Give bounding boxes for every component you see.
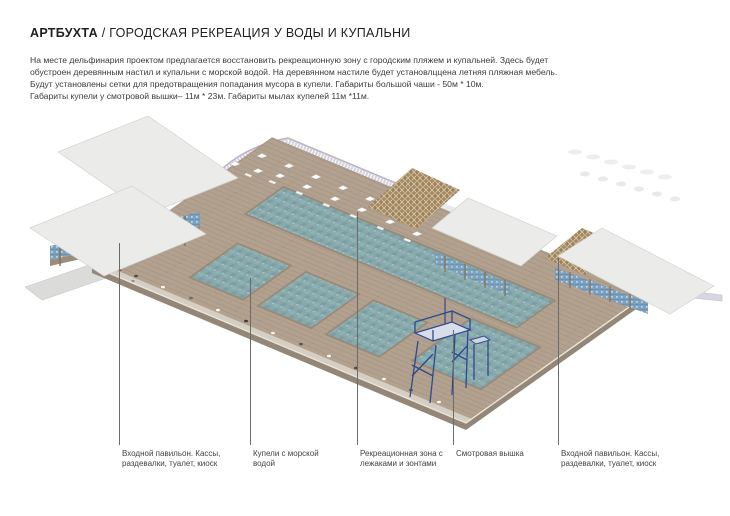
- callout-sea-water-pools: Купели с морской водой: [253, 449, 325, 468]
- leader-line: [357, 212, 358, 445]
- title-subtitle: / ГОРОДСКАЯ РЕКРЕАЦИЯ У ВОДЫ И КУПАЛЬНИ: [102, 26, 411, 40]
- page-title: АРТБУХТА / ГОРОДСКАЯ РЕКРЕАЦИЯ У ВОДЫ И …: [30, 26, 411, 40]
- leader-line: [558, 258, 559, 445]
- site-plan-illustration: [0, 100, 730, 445]
- description-line: На месте дельфинария проектом предлагает…: [30, 54, 557, 66]
- presentation-slide: АРТБУХТА / ГОРОДСКАЯ РЕКРЕАЦИЯ У ВОДЫ И …: [0, 0, 730, 516]
- callout-watchtower: Смотровая вышка: [456, 449, 548, 459]
- leader-line: [250, 278, 251, 445]
- description-line: Будут установлены сетки для предотвращен…: [30, 78, 557, 90]
- callout-entrance-pavilion-left: Входной павильон. Кассы, раздевалки, туа…: [122, 449, 234, 468]
- leader-line: [119, 243, 120, 445]
- leader-line: [453, 330, 454, 445]
- description-line: обустроен деревянным настил и купальни с…: [30, 66, 557, 78]
- background-ghost-structures: [568, 150, 680, 202]
- callout-recreation-zone: Рекреационная зона с лежаками и зонтами: [360, 449, 464, 468]
- title-brand: АРТБУХТА: [30, 26, 98, 40]
- project-description: На месте дельфинария проектом предлагает…: [30, 54, 557, 102]
- callout-entrance-pavilion-right: Входной павильон. Кассы, раздевалки, туа…: [561, 449, 677, 468]
